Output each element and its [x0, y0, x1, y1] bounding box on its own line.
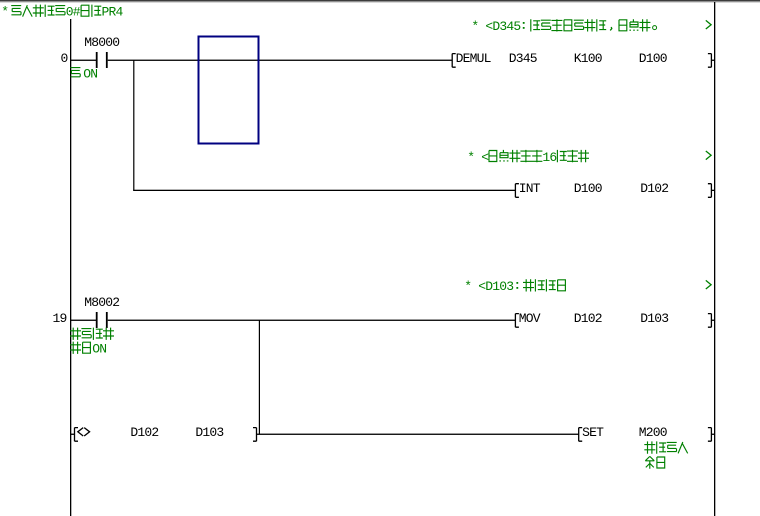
svg-text:D102: D102 [130, 425, 158, 440]
svg-text:K100: K100 [574, 51, 602, 66]
svg-text:INT: INT [519, 181, 541, 196]
svg-text:PR4: PR4 [102, 5, 124, 20]
svg-text:ON: ON [83, 67, 97, 82]
svg-text:0: 0 [60, 51, 67, 66]
svg-text:D100: D100 [574, 181, 602, 196]
svg-text:* <D103: * <D103 [464, 279, 513, 294]
svg-text:DEMUL: DEMUL [456, 51, 491, 66]
svg-text:D345: D345 [509, 51, 537, 66]
svg-text:0#: 0# [66, 5, 81, 20]
svg-text:M200: M200 [639, 425, 667, 440]
svg-text:* <: * < [467, 150, 489, 165]
svg-text:D102: D102 [640, 181, 668, 196]
svg-text:16: 16 [542, 150, 556, 165]
svg-text:M8000: M8000 [84, 35, 119, 50]
svg-text:* <D345: * <D345 [471, 19, 520, 34]
svg-text:D100: D100 [639, 51, 667, 66]
svg-text:D103: D103 [640, 311, 668, 326]
svg-text:D102: D102 [574, 311, 602, 326]
svg-text:D103: D103 [195, 425, 223, 440]
svg-text:ON: ON [92, 342, 106, 357]
svg-text:M8002: M8002 [84, 295, 119, 310]
svg-text:MOV: MOV [519, 311, 541, 326]
svg-text:*: * [1, 5, 8, 20]
svg-text:SET: SET [582, 425, 604, 440]
svg-text:19: 19 [52, 311, 66, 326]
